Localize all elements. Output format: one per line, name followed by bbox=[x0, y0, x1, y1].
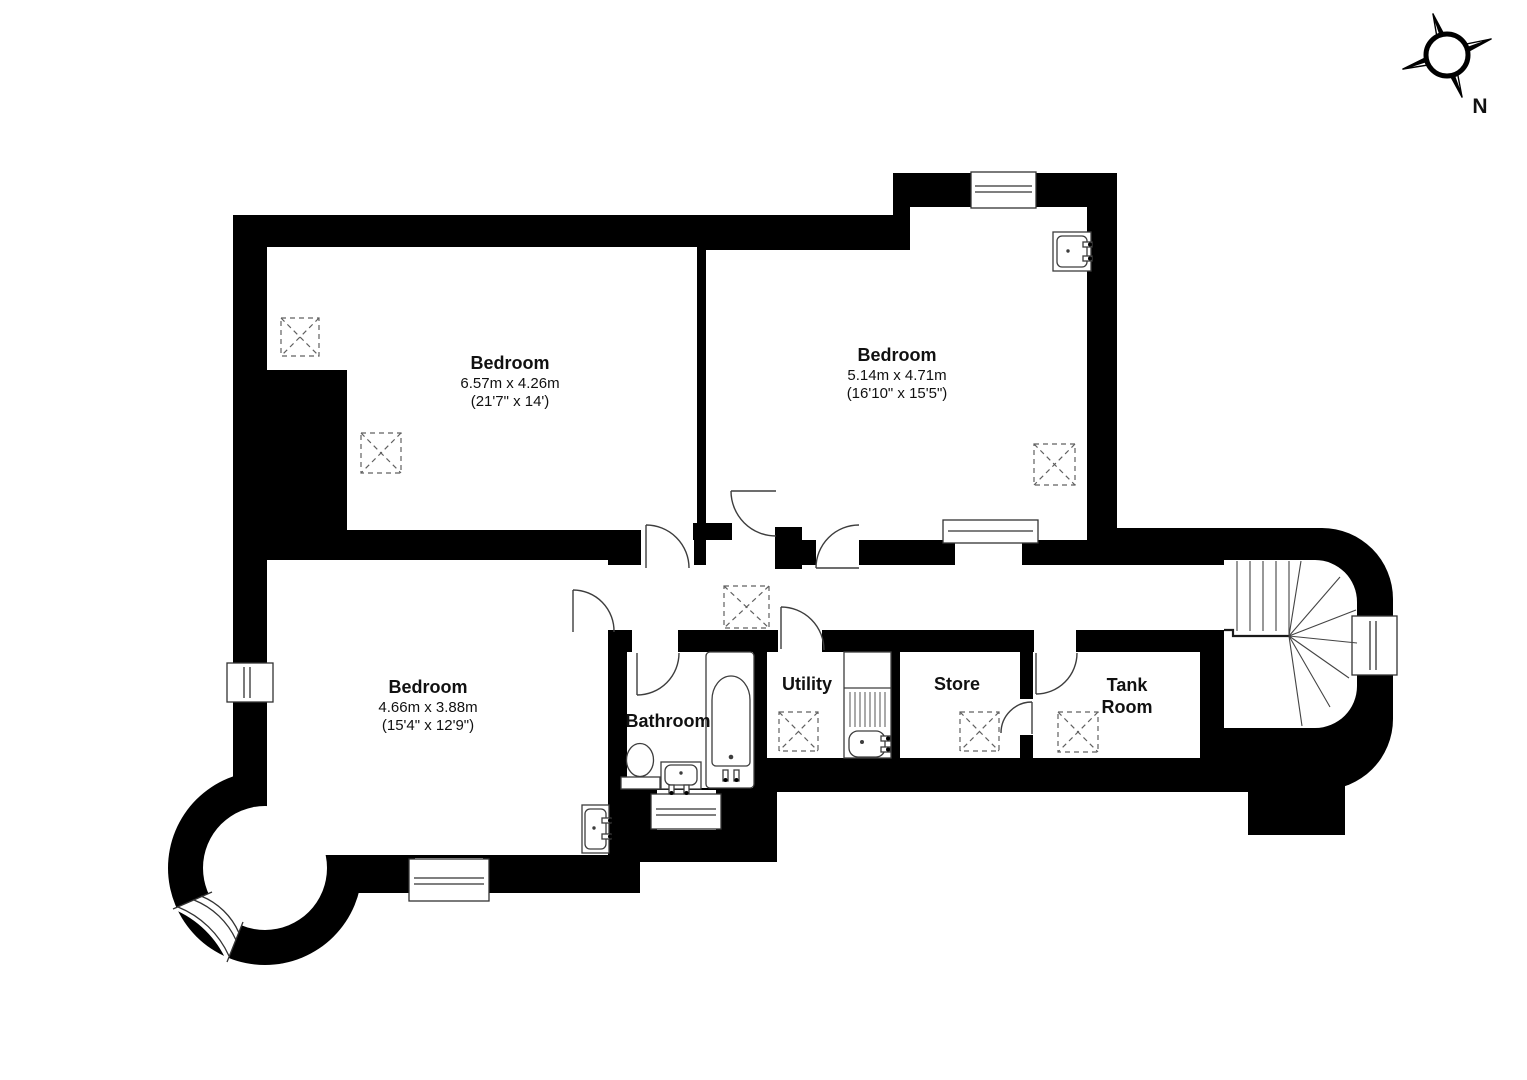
bedroom-1-dim-metric: 6.57m x 4.26m bbox=[460, 375, 559, 392]
bedroom-1-dim-imperial: (21'7" x 14') bbox=[471, 393, 550, 410]
floorplan-drawing: Bedroom 6.57m x 4.26m (21'7" x 14') Bedr… bbox=[0, 0, 1527, 1080]
bedroom-3-label: Bedroom bbox=[388, 677, 467, 697]
bathtub bbox=[706, 652, 754, 788]
store-floor bbox=[900, 652, 1020, 758]
window-bathroom-bottom bbox=[651, 790, 721, 830]
window-stairs-east bbox=[1352, 616, 1397, 675]
bathroom-label: Bathroom bbox=[626, 711, 711, 731]
bedroom-3-dim-metric: 4.66m x 3.88m bbox=[378, 699, 477, 716]
bedroom2-basin bbox=[1053, 232, 1092, 271]
bedroom-2-dim-imperial: (16'10" x 15'5") bbox=[847, 385, 948, 402]
hallway-floor bbox=[600, 565, 1224, 630]
window-bedroom2-top bbox=[971, 170, 1036, 213]
bathroom-door-opening bbox=[632, 628, 678, 654]
utility-sink-unit bbox=[844, 652, 891, 758]
utility-door-opening bbox=[778, 628, 822, 654]
bedroom-1-label: Bedroom bbox=[470, 353, 549, 373]
compass-circle bbox=[1426, 34, 1468, 76]
window-bedroom3-bottom bbox=[409, 858, 489, 901]
tank-room-door-opening bbox=[1034, 628, 1076, 654]
bedroom3-basin bbox=[582, 805, 612, 853]
bedroom-1-door-opening bbox=[641, 528, 694, 569]
bedroom-3-dim-imperial: (15'4" x 12'9") bbox=[382, 717, 474, 734]
floorplan-page: Bedroom 6.57m x 4.26m (21'7" x 14') Bedr… bbox=[0, 0, 1527, 1080]
utility-label: Utility bbox=[782, 674, 832, 694]
bedroom-2-dim-metric: 5.14m x 4.71m bbox=[847, 367, 946, 384]
bedroom-2-label: Bedroom bbox=[857, 345, 936, 365]
tank-room-label-line1: Tank bbox=[1107, 675, 1149, 695]
bedroom-2-door-opening bbox=[816, 538, 859, 569]
compass-north-label: N bbox=[1472, 95, 1487, 118]
window-bedroom3-left bbox=[227, 663, 273, 702]
store-label: Store bbox=[934, 674, 980, 694]
tank-room-label-line2: Room bbox=[1102, 697, 1153, 717]
